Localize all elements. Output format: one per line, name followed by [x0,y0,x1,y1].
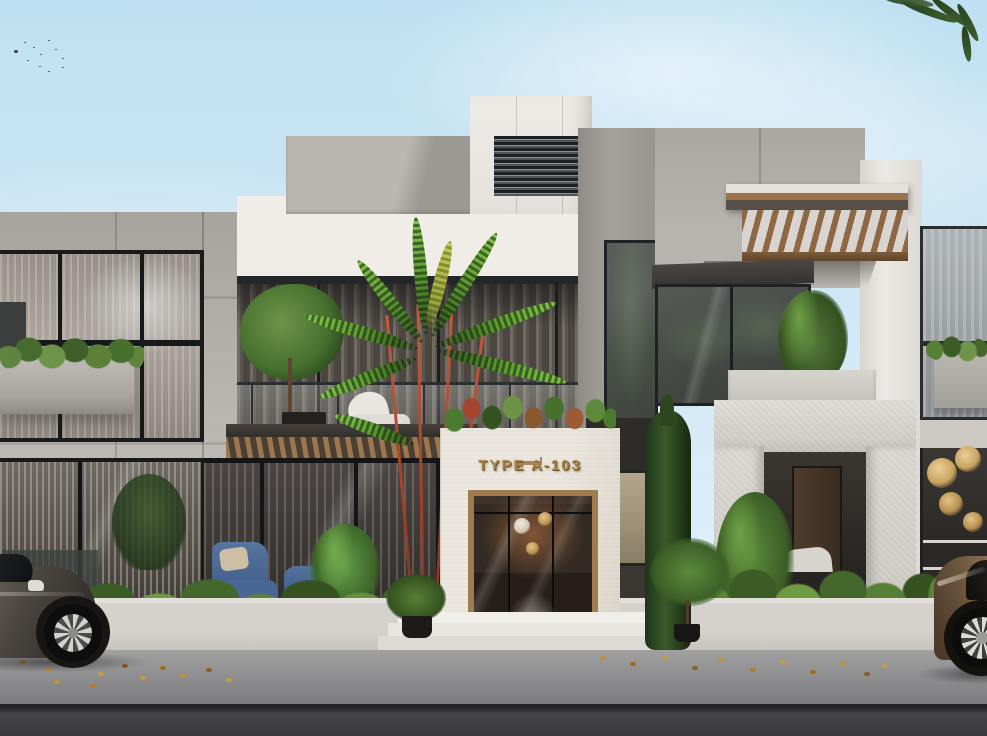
pavement [0,650,987,708]
pendant-light [538,512,552,526]
far-right-planter-greenery [926,336,987,362]
palm-stem [416,304,425,620]
pendant-light [963,512,983,532]
chair-pillow [219,546,250,572]
planter-greenery [0,336,144,370]
cypress-tip [660,394,674,426]
pergola-beam [742,252,908,261]
cypress-tree [645,410,691,650]
roof-tower [470,96,592,214]
architectural-rendering: TYPE A-103 [0,0,987,736]
pendant-light [514,518,530,534]
entrance-door [468,490,598,624]
fallen-leaves [600,656,606,660]
entrance-roof-planting [444,390,616,436]
wheel-rim [54,614,92,652]
far-right-spandrel [920,420,987,448]
bird-flock [14,50,18,53]
car-left-wheel [44,604,102,662]
entrance-sign: TYPE A-103 [446,452,614,478]
pendant-light [526,542,539,555]
road [0,704,987,736]
potted-tree [650,538,730,606]
balcony-tree-trunk [288,358,292,416]
pendant-light [927,458,957,488]
wheel-rim [961,617,987,659]
louver-vent [494,136,580,196]
interior-plant [112,474,186,570]
potted-shrub [386,574,446,622]
sign-bracket-right [518,457,542,465]
plant-pot [674,624,700,642]
pendant-light [939,492,963,516]
pendant-light [955,446,981,472]
pergola-fascia [726,184,908,210]
overhanging-leaves [872,0,987,60]
car-mirror [28,580,44,591]
palm-frond [436,344,567,389]
plant-pot [402,616,432,638]
pergola-slats [742,210,908,256]
